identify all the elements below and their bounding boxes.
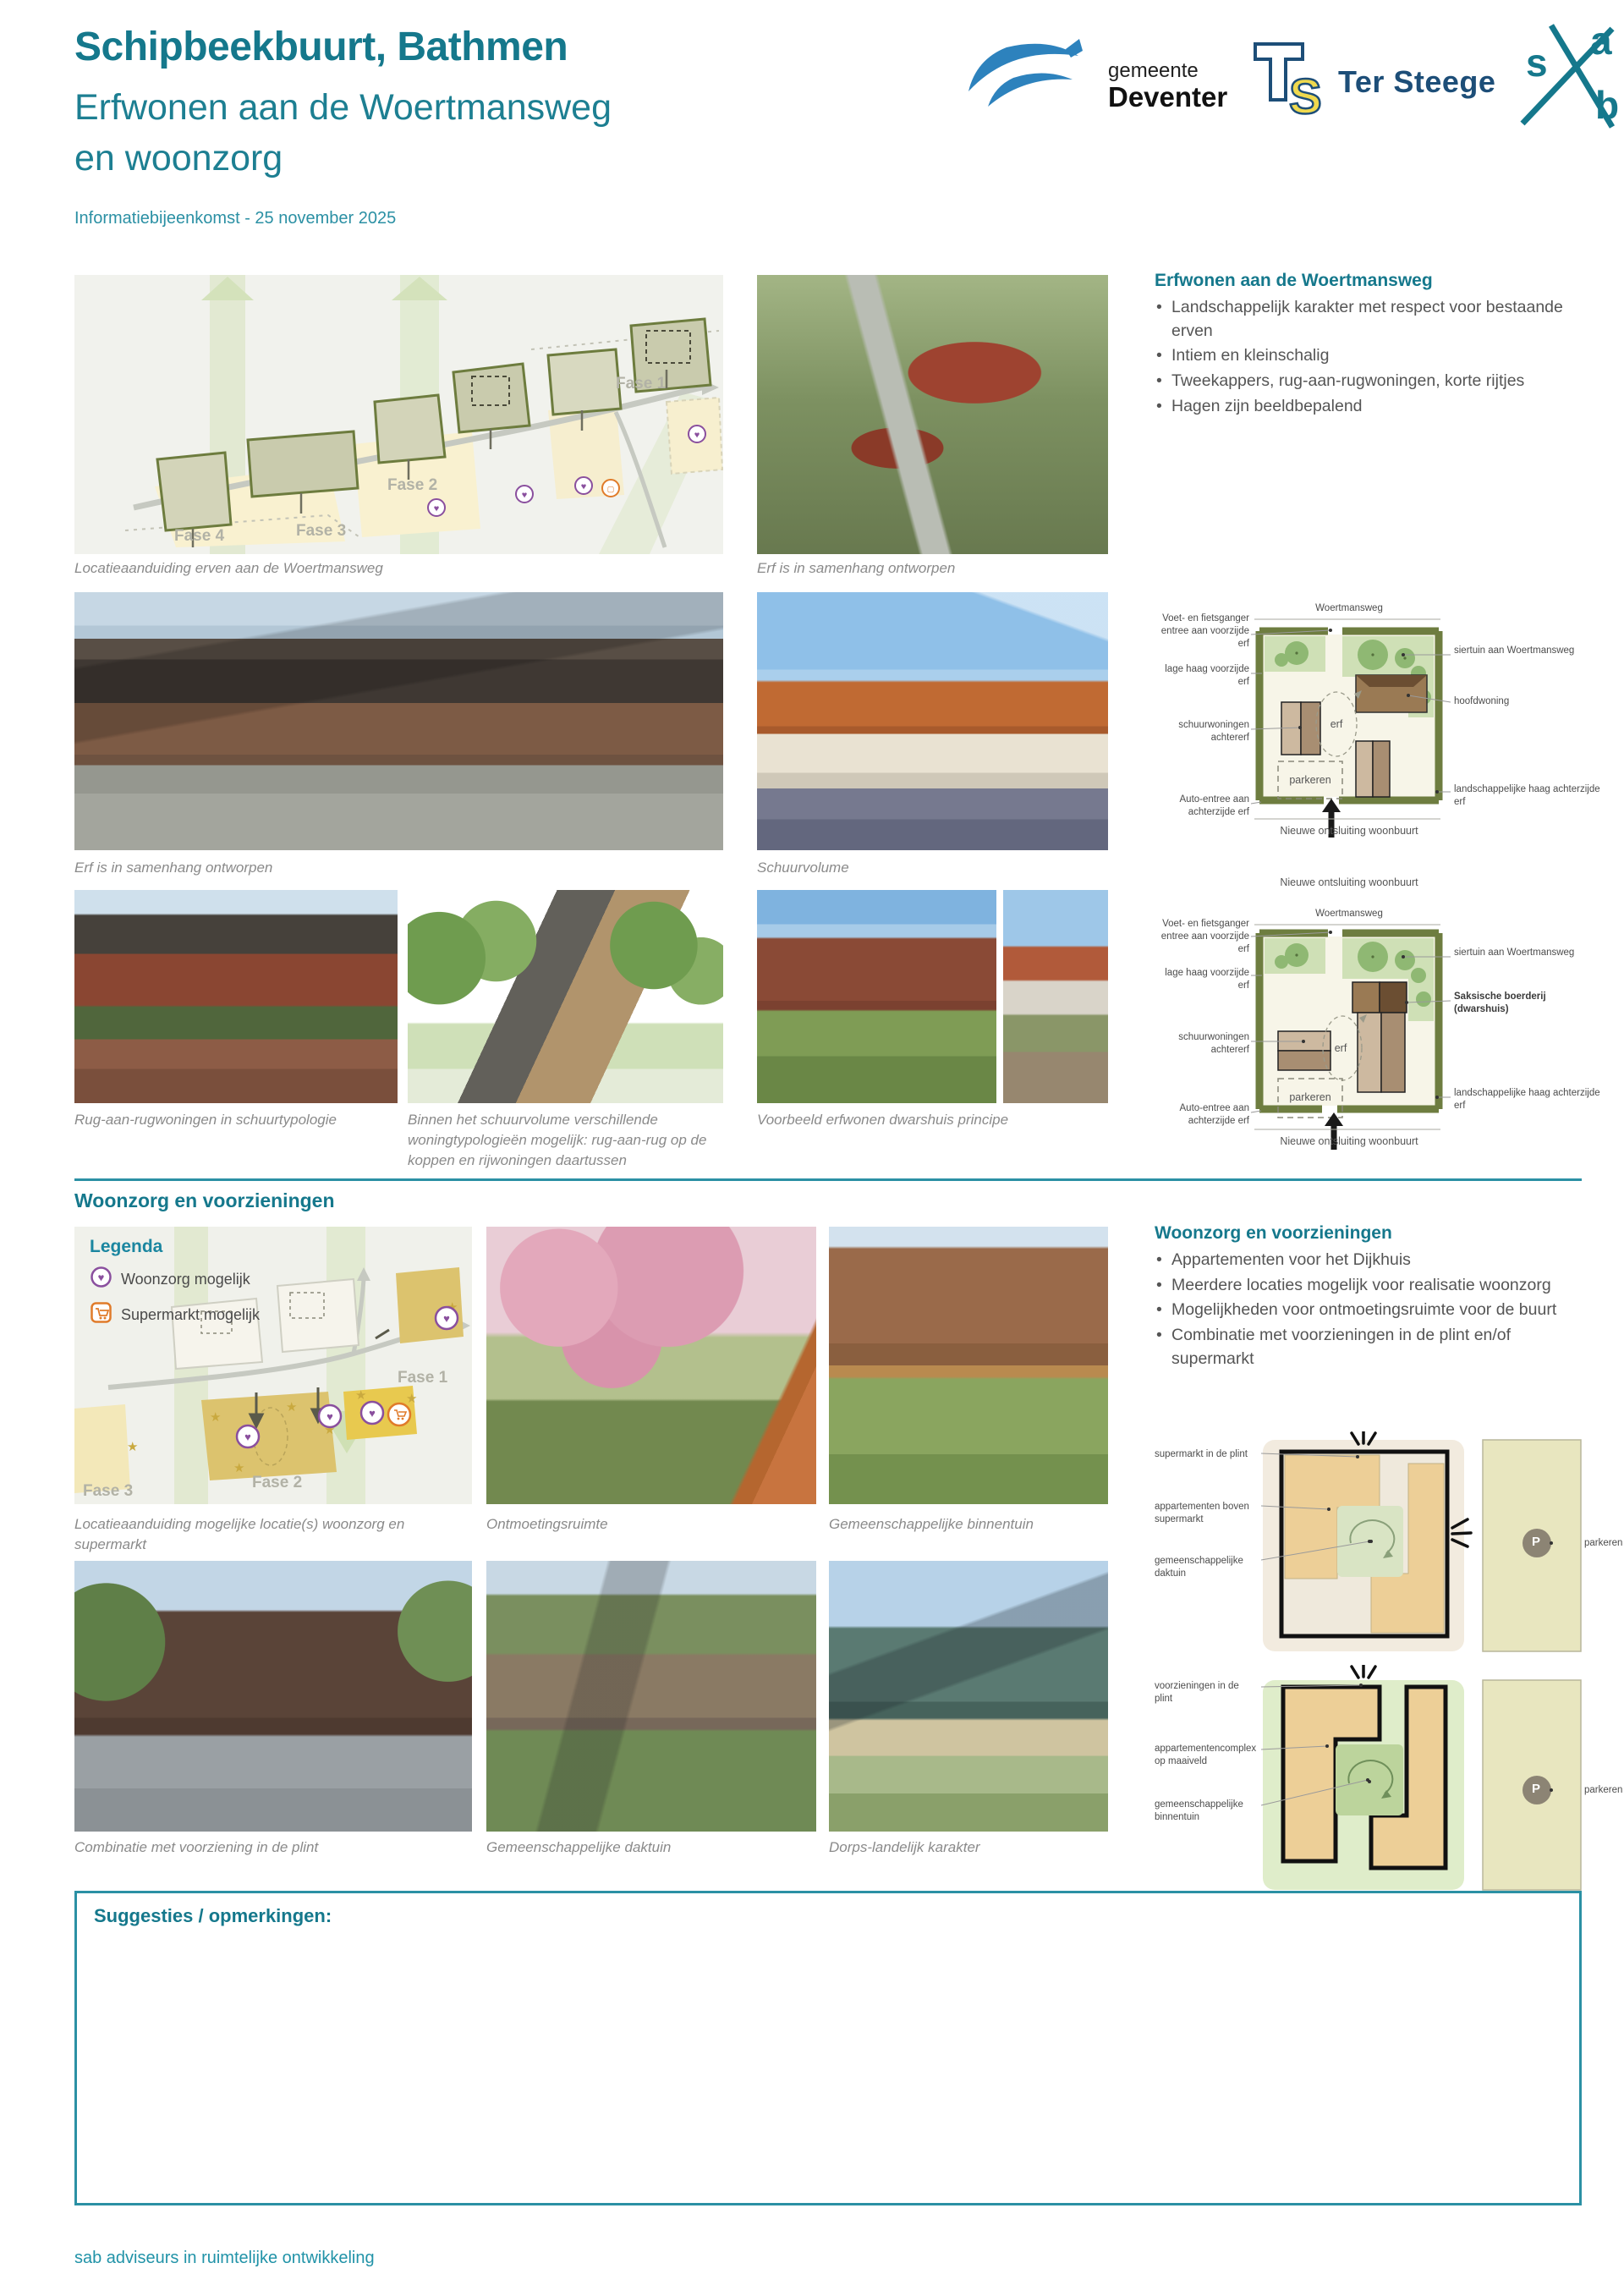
bullet-item: Appartementen voor het Dijkhuis bbox=[1155, 1249, 1594, 1272]
map-phases-erfwonen: ♥ ♥ ♥ ▢ ♥ Fase 1 Fase 2 Fase 3 Fase 4 bbox=[74, 275, 723, 554]
map-woonzorg-locaties: ★★★ ★★★ ★★ ♥ ♥ ♥ ♥ Legenda ♥ Woonzorg mo… bbox=[74, 1227, 472, 1504]
svg-text:★: ★ bbox=[355, 1388, 366, 1403]
diagram-label: Auto-entree aan achterzijde erf bbox=[1155, 794, 1249, 819]
caption-dorps: Dorps-landelijk karakter bbox=[829, 1837, 1108, 1858]
sab-logo-icon: s a b bbox=[1516, 20, 1619, 132]
svg-text:★: ★ bbox=[406, 1392, 417, 1406]
svg-text:a: a bbox=[1590, 20, 1612, 63]
suggestions-box[interactable]: Suggesties / opmerkingen: bbox=[74, 1891, 1582, 2205]
tersteege-name-label: Ter Steege bbox=[1338, 64, 1495, 100]
photo-voorbeeld-straat bbox=[1003, 890, 1108, 1103]
diagram-road-label: Woertmansweg bbox=[1256, 908, 1442, 920]
photo-binnentuin bbox=[829, 1227, 1108, 1504]
woonzorg-heading: Woonzorg en voorzieningen bbox=[1155, 1223, 1594, 1244]
svg-text:b: b bbox=[1595, 83, 1619, 127]
woonzorg-section-heading: Woonzorg en voorzieningen bbox=[74, 1189, 335, 1212]
bullet-item: Combinatie met voorzieningen in de plint… bbox=[1155, 1324, 1594, 1370]
diagram-label: landschappelijke haag achterzijde erf bbox=[1454, 783, 1602, 809]
section-divider bbox=[74, 1178, 1582, 1181]
diagram-top-label: Nieuwe ontsluiting woonbuurt bbox=[1248, 876, 1451, 889]
svg-text:★: ★ bbox=[127, 1440, 138, 1454]
svg-text:♥: ♥ bbox=[326, 1410, 333, 1423]
caption-plint: Combinatie met voorziening in de plint bbox=[74, 1837, 464, 1858]
caption-rug: Rug-aan-rugwoningen in schuurtypologie bbox=[74, 1110, 396, 1130]
svg-text:♥: ♥ bbox=[694, 431, 700, 441]
svg-text:♥: ♥ bbox=[522, 491, 528, 501]
diagram-road-label: Woertmansweg bbox=[1256, 602, 1442, 615]
erf-label: erf bbox=[1320, 1041, 1361, 1055]
bullet-item: Meerdere locaties mogelijk voor realisat… bbox=[1155, 1274, 1594, 1298]
svg-text:♥: ♥ bbox=[244, 1431, 251, 1443]
caption-erf-samenhang-2: Erf is in samenhang ontworpen bbox=[74, 858, 717, 878]
diagram-bottom-label: Nieuwe ontsluiting woonbuurt bbox=[1248, 824, 1451, 838]
page-subtitle-line2: en woonzorg bbox=[74, 138, 283, 179]
parkeren-label: parkeren bbox=[1584, 1784, 1623, 1797]
svg-text:♥: ♥ bbox=[581, 482, 587, 492]
photo-dorps bbox=[829, 1561, 1108, 1832]
diagram-label: lage haag voorzijde erf bbox=[1155, 663, 1249, 689]
caption-daktuin: Gemeenschappelijke daktuin bbox=[486, 1837, 808, 1858]
woonzorg-bullet-block: Woonzorg en voorzieningen Appartementen … bbox=[1155, 1223, 1594, 1372]
caption-erf-samenhang-1: Erf is in samenhang ontworpen bbox=[757, 558, 1112, 579]
caption-ontmoetingsruimte: Ontmoetingsruimte bbox=[486, 1514, 808, 1535]
diagram-label: voorzieningen in de plint bbox=[1155, 1680, 1259, 1705]
logo-tersteege: S Ter Steege bbox=[1250, 39, 1504, 132]
diagram-label: Auto-entree aan achterzijde erf bbox=[1155, 1102, 1249, 1128]
map-legend: Legenda ♥ Woonzorg mogelijk Supermarkt m… bbox=[90, 1237, 260, 1328]
erf-label: erf bbox=[1316, 717, 1357, 731]
parkeren-label: parkeren bbox=[1278, 1090, 1342, 1104]
legend-item-woonzorg: ♥ Woonzorg mogelijk bbox=[90, 1266, 260, 1293]
diagram-erf-principle-2: Nieuwe ontsluiting woonbuurt Woertmanswe… bbox=[1155, 876, 1624, 1155]
render-schuurvolume bbox=[408, 890, 723, 1103]
photo-erf-samenhang bbox=[74, 592, 723, 850]
caption-locatie-erven: Locatieaanduiding erven aan de Woertmans… bbox=[74, 558, 717, 579]
bullet-item: Mogelijkheden voor ontmoetingsruimte voo… bbox=[1155, 1299, 1594, 1322]
fase-label: Fase 2 bbox=[252, 1474, 302, 1492]
photo-plint bbox=[74, 1561, 472, 1832]
svg-text:▢: ▢ bbox=[607, 485, 615, 493]
legend-item-supermarkt: Supermarkt mogelijk bbox=[90, 1301, 260, 1328]
diagram-label: hoofdwoning bbox=[1454, 695, 1602, 708]
svg-text:♥: ♥ bbox=[443, 1312, 450, 1325]
caption-voorbeeld: Voorbeeld erfwonen dwarshuis principe bbox=[757, 1110, 1112, 1130]
diagram-label: schuurwoningen achtererf bbox=[1155, 719, 1249, 744]
fase-label: Fase 1 bbox=[616, 375, 666, 393]
fase-label: Fase 2 bbox=[387, 476, 437, 495]
fase-label: Fase 1 bbox=[398, 1369, 447, 1387]
diagram-bottom-label: Nieuwe ontsluiting woonbuurt bbox=[1248, 1134, 1451, 1148]
diagram-label: siertuin aan Woertmansweg bbox=[1454, 947, 1602, 959]
diagram-label: schuurwoningen achtererf bbox=[1155, 1031, 1249, 1057]
fase-label: Fase 4 bbox=[174, 527, 224, 546]
tersteege-logo-icon: S bbox=[1250, 39, 1328, 124]
bullet-item: Intiem en kleinschalig bbox=[1155, 344, 1594, 368]
woonzorg-diagram-drawing bbox=[1155, 1431, 1624, 1658]
suggestions-label: Suggesties / opmerkingen: bbox=[94, 1905, 1579, 1927]
photo-daktuin bbox=[486, 1561, 816, 1832]
svg-text:♥: ♥ bbox=[434, 504, 440, 514]
legend-title: Legenda bbox=[90, 1237, 260, 1257]
parkeren-label: parkeren bbox=[1584, 1537, 1623, 1550]
caption-locatie-woonzorg: Locatieaanduiding mogelijke locatie(s) w… bbox=[74, 1514, 464, 1555]
svg-text:★: ★ bbox=[210, 1410, 221, 1425]
fase-label: Fase 3 bbox=[83, 1482, 133, 1501]
deventer-name-label: Deventer bbox=[1108, 83, 1227, 113]
photo-ontmoetingsruimte bbox=[486, 1227, 816, 1504]
photo-rug-aan-rug bbox=[74, 890, 398, 1103]
diagram-label: supermarkt in de plint bbox=[1155, 1448, 1259, 1461]
site-plan-map: ♥ ♥ ♥ ▢ ♥ bbox=[74, 275, 723, 554]
photo-aerial-erf bbox=[757, 275, 1108, 554]
diagram-label: appartementencomplex op maaiveld bbox=[1155, 1743, 1259, 1768]
svg-text:★: ★ bbox=[233, 1461, 244, 1475]
diagram-label: lage haag voorzijde erf bbox=[1155, 967, 1249, 992]
deventer-small-label: gemeente bbox=[1108, 61, 1199, 81]
deventer-logo-icon bbox=[964, 34, 1104, 127]
svg-text:♥: ♥ bbox=[369, 1407, 376, 1420]
diagram-label: Voet- en fietsganger entree aan voorzijd… bbox=[1155, 612, 1249, 651]
svg-text:S: S bbox=[1289, 69, 1322, 124]
diagram-label: Voet- en fietsganger entree aan voorzijd… bbox=[1155, 918, 1249, 956]
svg-text:★: ★ bbox=[286, 1400, 297, 1414]
logo-sab: s a b bbox=[1516, 20, 1619, 132]
diagram-label: gemeenschappelijke binnentuin bbox=[1155, 1799, 1259, 1824]
bullet-item: Tweekappers, rug-aan-rugwoningen, korte … bbox=[1155, 370, 1594, 393]
diagram-erf-principle-1: Woertmansweg Voet- en fietsganger entree… bbox=[1155, 590, 1624, 849]
svg-text:♥: ♥ bbox=[98, 1272, 105, 1284]
svg-text:s: s bbox=[1526, 41, 1548, 85]
caption-binnen-schuurvolume: Binnen het schuurvolume verschillende wo… bbox=[408, 1110, 726, 1170]
diagram-label: siertuin aan Woertmansweg bbox=[1454, 645, 1602, 657]
erfwonen-bullet-block: Erfwonen aan de Woertmansweg Landschappe… bbox=[1155, 271, 1594, 420]
parking-p-badge: P bbox=[1532, 1535, 1540, 1549]
parkeren-label: parkeren bbox=[1278, 773, 1342, 787]
bullet-item: Landschappelijk karakter met respect voo… bbox=[1155, 296, 1594, 343]
diagram-supermarkt-plint: supermarkt in de plint appartementen bov… bbox=[1155, 1431, 1624, 1658]
supermarkt-cart-icon bbox=[90, 1301, 112, 1328]
logo-deventer: gemeente Deventer bbox=[964, 34, 1243, 127]
fase-label: Fase 3 bbox=[296, 522, 346, 541]
footer-credit: sab adviseurs in ruimtelijke ontwikkelin… bbox=[74, 2249, 375, 2268]
page-subtitle-line1: Erfwonen aan de Woertmansweg bbox=[74, 87, 612, 129]
parking-p-badge: P bbox=[1532, 1782, 1540, 1796]
legend-label: Woonzorg mogelijk bbox=[121, 1271, 250, 1288]
diagram-label: landschappelijke haag achterzijde erf bbox=[1454, 1087, 1602, 1112]
woonzorg-heart-icon: ♥ bbox=[90, 1266, 112, 1293]
diagram-label: gemeenschappelijke daktuin bbox=[1155, 1555, 1259, 1580]
caption-binnentuin: Gemeenschappelijke binnentuin bbox=[829, 1514, 1108, 1535]
page-title: Schipbeekbuurt, Bathmen bbox=[74, 24, 568, 70]
legend-label: Supermarkt mogelijk bbox=[121, 1306, 260, 1324]
erfwonen-heading: Erfwonen aan de Woertmansweg bbox=[1155, 271, 1594, 291]
diagram-label-saksische-boerderij: Saksische boerderij (dwarshuis) bbox=[1454, 991, 1602, 1016]
diagram-label: appartementen boven supermarkt bbox=[1155, 1501, 1259, 1526]
bullet-item: Hagen zijn beeldbepalend bbox=[1155, 395, 1594, 419]
photo-voorbeeld-dwarshuis bbox=[757, 890, 996, 1103]
poster-page: Schipbeekbuurt, Bathmen Erfwonen aan de … bbox=[0, 0, 1624, 2274]
event-date: Informatiebijeenkomst - 25 november 2025 bbox=[74, 209, 396, 228]
diagram-appartementencomplex: voorzieningen in de plint appartementenc… bbox=[1155, 1665, 1624, 1898]
caption-schuurvolume: Schuurvolume bbox=[757, 858, 1112, 878]
photo-schuurvolume bbox=[757, 592, 1108, 850]
